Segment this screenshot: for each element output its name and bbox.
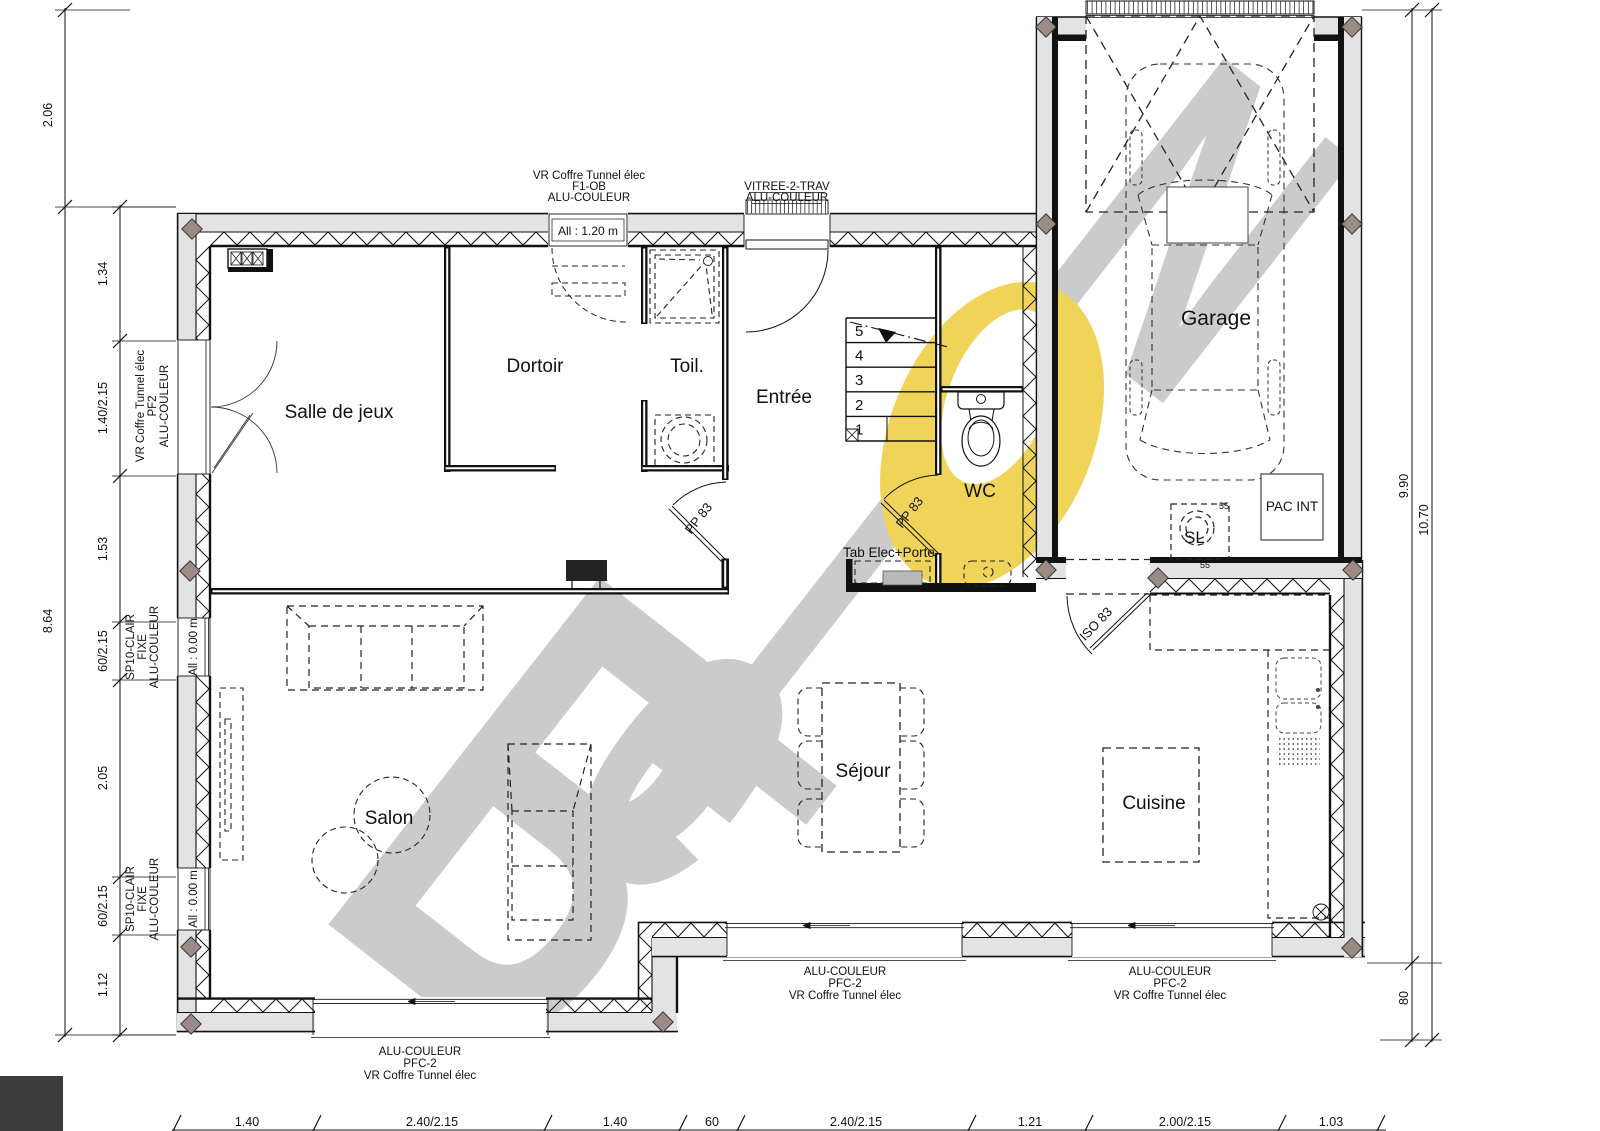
svg-text:60/2.15: 60/2.15	[96, 885, 110, 927]
svg-text:ALU-COULEUR: ALU-COULEUR	[548, 192, 630, 204]
svg-text:PF2: PF2	[147, 395, 159, 416]
svg-text:1.03: 1.03	[1319, 1115, 1343, 1129]
svg-text:10.70: 10.70	[1417, 504, 1431, 535]
svg-text:ALU-COULEUR: ALU-COULEUR	[804, 966, 886, 978]
svg-text:All : 1.20 m: All : 1.20 m	[558, 224, 618, 238]
svg-text:80: 80	[1397, 991, 1411, 1005]
svg-text:All : 0.00 m: All : 0.00 m	[188, 618, 200, 676]
svg-text:1.40: 1.40	[235, 1115, 259, 1129]
svg-text:PFC-2: PFC-2	[403, 1058, 436, 1070]
svg-text:Salon: Salon	[365, 808, 414, 829]
svg-text:2.40/2.15: 2.40/2.15	[406, 1115, 458, 1129]
svg-text:PAC INT: PAC INT	[1266, 499, 1318, 514]
svg-text:2.06: 2.06	[41, 103, 55, 127]
svg-text:8.64: 8.64	[41, 609, 55, 633]
svg-text:VR Coffre Tunnel élec: VR Coffre Tunnel élec	[135, 350, 147, 463]
svg-text:3: 3	[855, 372, 863, 389]
svg-text:1.53: 1.53	[96, 537, 110, 561]
svg-text:VR Coffre Tunnel élec: VR Coffre Tunnel élec	[789, 990, 902, 1002]
svg-text:Entrée: Entrée	[756, 387, 812, 408]
svg-text:VR Coffre Tunnel élec: VR Coffre Tunnel élec	[364, 1070, 477, 1082]
svg-text:FIXE: FIXE	[137, 634, 149, 660]
svg-text:Dortoir: Dortoir	[506, 356, 564, 377]
svg-text:9.90: 9.90	[1397, 474, 1411, 498]
svg-text:2.05: 2.05	[96, 766, 110, 790]
svg-text:WC: WC	[964, 481, 996, 502]
svg-text:Séjour: Séjour	[836, 761, 892, 782]
svg-text:55: 55	[1200, 560, 1210, 570]
svg-text:Cuisine: Cuisine	[1122, 793, 1185, 814]
svg-text:4: 4	[855, 348, 863, 365]
svg-text:Toil.: Toil.	[670, 356, 704, 377]
svg-text:All : 0.00 m: All : 0.00 m	[188, 870, 200, 928]
svg-text:2.40/2.15: 2.40/2.15	[830, 1115, 882, 1129]
svg-text:Garage: Garage	[1181, 307, 1251, 330]
svg-text:60/2.15: 60/2.15	[96, 630, 110, 672]
svg-text:1.12: 1.12	[96, 973, 110, 997]
svg-text:ALU-COULEUR: ALU-COULEUR	[149, 606, 161, 688]
svg-text:SP10-CLAIR: SP10-CLAIR	[125, 866, 137, 932]
svg-text:ALU-COULEUR: ALU-COULEUR	[149, 858, 161, 940]
svg-text:1.40: 1.40	[603, 1115, 627, 1129]
svg-text:ALU-COULEUR: ALU-COULEUR	[159, 365, 171, 447]
svg-text:2.00/2.15: 2.00/2.15	[1159, 1115, 1211, 1129]
svg-text:ALU-COULEUR: ALU-COULEUR	[746, 192, 828, 204]
svg-text:1.34: 1.34	[96, 262, 110, 286]
svg-text:5: 5	[855, 323, 863, 340]
svg-text:ALU-COULEUR: ALU-COULEUR	[1129, 966, 1211, 978]
svg-text:Salle de jeux: Salle de jeux	[285, 402, 394, 423]
svg-text:2: 2	[855, 397, 863, 414]
svg-text:ALU-COULEUR: ALU-COULEUR	[379, 1046, 461, 1058]
svg-text:PFC-2: PFC-2	[828, 978, 861, 990]
svg-text:FIXE: FIXE	[137, 886, 149, 912]
svg-text:60: 60	[705, 1115, 719, 1129]
svg-text:VR Coffre Tunnel élec: VR Coffre Tunnel élec	[1114, 990, 1227, 1002]
svg-text:1.40/2.15: 1.40/2.15	[96, 382, 110, 434]
svg-text:SL: SL	[1184, 528, 1205, 547]
svg-text:Tab Elec+Porte: Tab Elec+Porte	[843, 545, 935, 560]
svg-text:SP10-CLAIR: SP10-CLAIR	[125, 614, 137, 680]
svg-text:55: 55	[1219, 501, 1229, 511]
svg-text:1.21: 1.21	[1018, 1115, 1042, 1129]
svg-text:PFC-2: PFC-2	[1153, 978, 1186, 990]
